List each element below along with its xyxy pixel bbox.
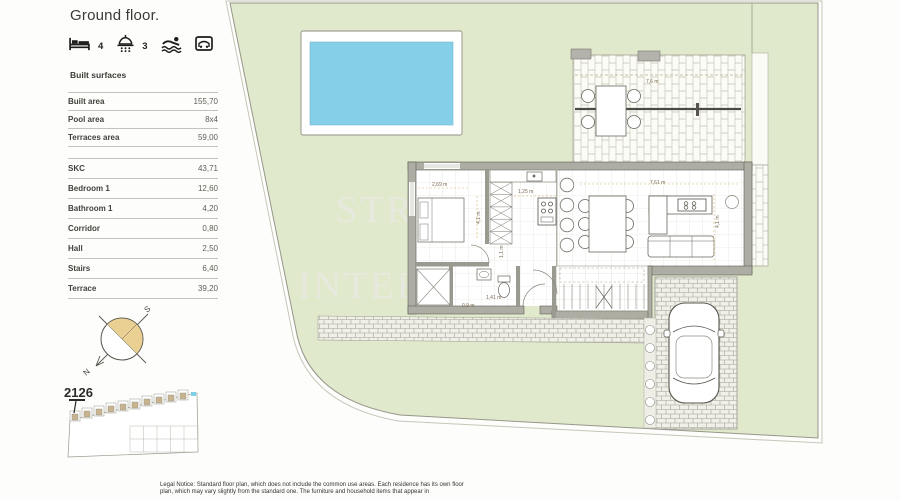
row-label: Bathroom 1 [68, 204, 112, 213]
row-value: 39,20 [198, 284, 218, 293]
dim-kitchen: 1,25 m [518, 189, 533, 195]
compass-south-label: S [143, 304, 153, 314]
row-value: 155,70 [194, 97, 218, 106]
table-row: Corridor 0,80 [68, 218, 218, 238]
dim-shower: 0,9 m [462, 303, 475, 309]
amenities-row: 4 3 [68, 34, 213, 58]
watermark-line1: STR [336, 189, 415, 231]
terrace-dimension: 7,6 m [646, 79, 659, 85]
bathroom-count: 3 [142, 41, 147, 52]
bed [418, 198, 464, 242]
row-label: Terrace [68, 284, 96, 293]
compass-north-label: N [82, 367, 92, 378]
garage-icon [195, 36, 213, 56]
row-value: 6,40 [202, 264, 218, 273]
dim-living-width: 7,61 m [650, 180, 665, 186]
table-row: Bedroom 1 12,60 [68, 178, 218, 198]
sofa [648, 236, 714, 257]
table-row: Terrace 39,20 [68, 278, 218, 299]
toilet [498, 276, 510, 282]
oven [538, 198, 556, 225]
built-surfaces-heading: Built surfaces [70, 70, 126, 80]
show-home-pool-marker [191, 392, 196, 396]
row-value: 43,71 [198, 164, 218, 173]
table-row: SKC 43,71 [68, 158, 218, 178]
row-label: Hall [68, 244, 83, 253]
swimmer-icon [161, 35, 182, 58]
table-row: Stairs 6,40 [68, 258, 218, 278]
row-label: Bedroom 1 [68, 184, 110, 193]
table-row: Built area 155,70 [68, 92, 218, 110]
row-value: 12,60 [198, 184, 218, 193]
row-value: 59,00 [198, 133, 218, 142]
shower-icon [116, 34, 135, 58]
room-surfaces-table: SKC 43,71 Bedroom 1 12,60 Bathroom 1 4,2… [68, 158, 218, 299]
table-row: Hall 2,50 [68, 238, 218, 258]
staircase [556, 266, 648, 311]
dim-bedroom-width: 2,69 m [432, 182, 447, 188]
row-value: 8x4 [205, 115, 218, 124]
pergola-post [571, 49, 591, 59]
dim-bathroom: 1,41 m [486, 295, 501, 301]
row-value: 0,80 [202, 224, 218, 233]
swimming-pool [301, 31, 462, 135]
side-terrace-strip [752, 165, 768, 266]
row-value: 2,50 [202, 244, 218, 253]
row-label: Terraces area [68, 133, 119, 142]
row-label: SKC [68, 164, 85, 173]
dining-table [579, 196, 634, 252]
table-row: Pool area 8x4 [68, 110, 218, 128]
built-surfaces-summary-table: Built area 155,70 Pool area 8x4 Terraces… [68, 92, 218, 147]
row-value: 4,20 [202, 204, 218, 213]
dim-bedroom-depth: 4,1 m [476, 211, 482, 224]
legal-notice: Legal Notice: Standard floor plan, which… [160, 482, 476, 497]
compass-rose: N S [82, 304, 153, 377]
car [664, 303, 724, 403]
bed-icon [68, 36, 91, 57]
dim-hall: 1,1 m [499, 245, 505, 258]
car-mirror [664, 330, 670, 337]
beam-junction [696, 103, 699, 116]
row-label: Built area [68, 97, 104, 106]
floorplan-page: STR INTER 7,6 m [0, 0, 900, 500]
row-label: Stairs [68, 264, 90, 273]
watermark-line2: INTER [298, 265, 425, 307]
table-row: Bathroom 1 4,20 [68, 198, 218, 218]
unit-number: 2126 [64, 385, 93, 400]
development-key-plan: 2126 [64, 385, 198, 457]
car-mirror [718, 330, 724, 337]
legal-line1: Legal Notice: Standard floor plan, which… [160, 482, 451, 488]
kitchen-counter [490, 170, 556, 182]
outdoor-terrace: 7,6 m [571, 49, 745, 165]
dim-living-depth: 4,1 m [715, 215, 721, 228]
pergola-post [638, 51, 660, 61]
row-label: Corridor [68, 224, 100, 233]
row-label: Pool area [68, 115, 104, 124]
utility-room [417, 269, 450, 305]
page-title: Ground floor. [70, 7, 159, 24]
bedroom-count: 4 [98, 41, 103, 52]
table-row: Terraces area 59,00 [68, 128, 218, 147]
driveway [644, 277, 737, 429]
garden-walkway [318, 316, 645, 343]
pool-water [310, 42, 453, 125]
